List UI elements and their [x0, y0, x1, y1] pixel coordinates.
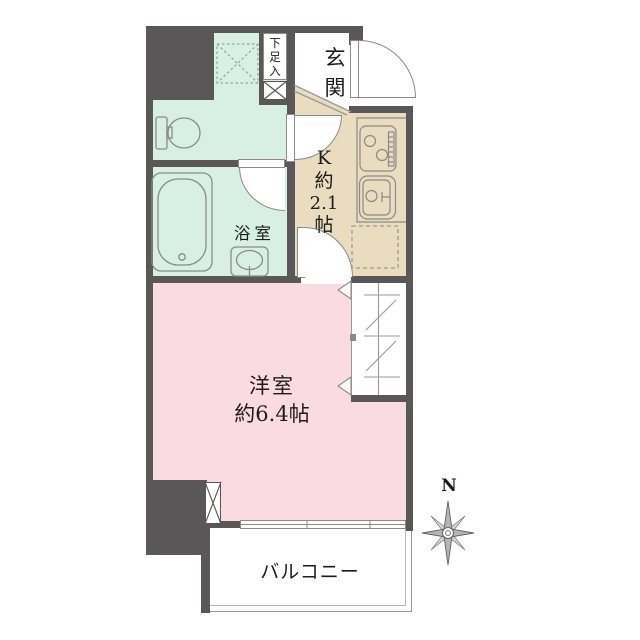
bathtub-icon [152, 173, 212, 271]
entrance-label: 玄 関 [320, 43, 350, 104]
western-room-name: 洋室 [192, 372, 352, 400]
balcony-label: バルコニー [249, 557, 371, 584]
floor-plan: 玄 関 下 足 入 K 約 2.1 帖 浴室 洋室 約6.4帖 バルコニー N [0, 0, 640, 640]
shoe-storage-label: 下 足 入 [264, 36, 286, 78]
washer-space-dashed-icon [217, 44, 258, 83]
refrigerator-space-dashed-icon [352, 226, 398, 268]
compass-rose-icon [422, 501, 474, 565]
sliding-window-icon [240, 520, 406, 529]
kitchen-counter-outline [357, 118, 406, 222]
western-room-label: 洋室 約6.4帖 [192, 372, 352, 429]
toilet-icon [156, 117, 200, 149]
compass-north-label: N [439, 476, 459, 496]
kitchen-label: K 約 2.1 帖 [303, 147, 345, 237]
closet-hanger-icon [364, 283, 400, 395]
pipe-shaft-x-icon [205, 482, 221, 524]
washbasin-icon [231, 247, 268, 276]
western-room-size: 約6.4帖 [192, 400, 352, 428]
shoe-cabinet-x-icon [263, 81, 287, 100]
stove-icon [360, 126, 396, 171]
bathroom-label: 浴室 [234, 220, 275, 244]
kitchen-sink-icon [360, 176, 396, 219]
